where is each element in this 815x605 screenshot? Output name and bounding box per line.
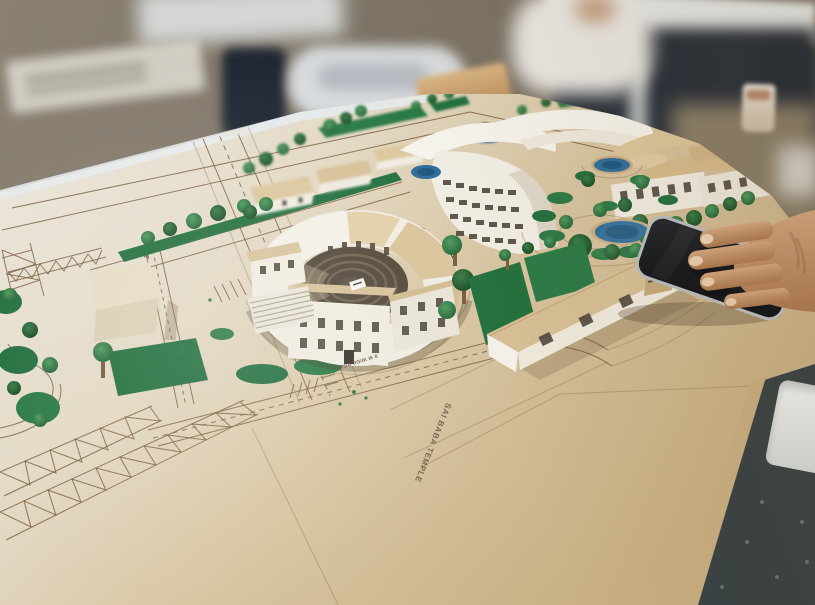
photo-architectural-model: SAI BABA TEMPLE 9 M WIDE ROAD <box>0 0 815 605</box>
phone-and-hand <box>0 0 815 605</box>
